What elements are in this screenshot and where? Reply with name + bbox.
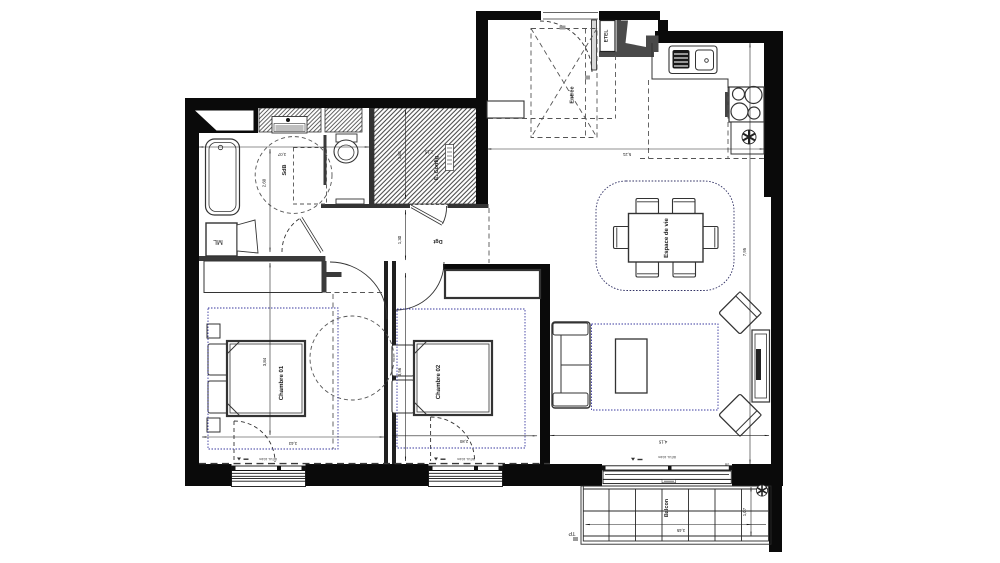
svg-text:1,07: 1,07 bbox=[742, 507, 747, 516]
svg-text:ETEL: ETEL bbox=[604, 30, 610, 43]
svg-text:SdB: SdB bbox=[282, 164, 288, 175]
svg-text:BEUL 104m: BEUL 104m bbox=[658, 455, 676, 459]
svg-text:3,45: 3,45 bbox=[676, 528, 685, 533]
svg-text:3,07: 3,07 bbox=[277, 152, 286, 157]
svg-text:1,81: 1,81 bbox=[397, 150, 402, 159]
svg-text:Dgt: Dgt bbox=[433, 238, 442, 244]
svg-text:BEUL 104m: BEUL 104m bbox=[457, 457, 475, 461]
svg-text:Chambre 01: Chambre 01 bbox=[278, 365, 285, 400]
svg-text:3,84: 3,84 bbox=[262, 357, 267, 366]
svg-text:2,60: 2,60 bbox=[262, 178, 267, 187]
svg-text:2,80: 2,80 bbox=[459, 439, 468, 444]
svg-text:1,30: 1,30 bbox=[397, 235, 402, 244]
svg-text:E. Config: E. Config bbox=[434, 156, 440, 180]
svg-text:ML: ML bbox=[213, 238, 223, 245]
svg-text:3,43: 3,43 bbox=[288, 441, 297, 446]
svg-text:Entrée: Entrée bbox=[569, 86, 576, 103]
svg-text:BEUL 104m: BEUL 104m bbox=[259, 457, 277, 461]
svg-text:7,95: 7,95 bbox=[742, 247, 747, 256]
svg-text:Espace de vie: Espace de vie bbox=[663, 217, 670, 257]
svg-text:4,15: 4,15 bbox=[658, 440, 667, 445]
svg-text:Balcon: Balcon bbox=[664, 498, 670, 517]
svg-text:3,56: 3,56 bbox=[397, 367, 402, 376]
svg-text:2,15: 2,15 bbox=[424, 150, 433, 155]
svg-text:Chambre 02: Chambre 02 bbox=[435, 364, 442, 399]
svg-text:TP: TP bbox=[568, 530, 575, 536]
svg-text:5,21: 5,21 bbox=[622, 152, 631, 157]
svg-text:VR: VR bbox=[724, 462, 729, 466]
